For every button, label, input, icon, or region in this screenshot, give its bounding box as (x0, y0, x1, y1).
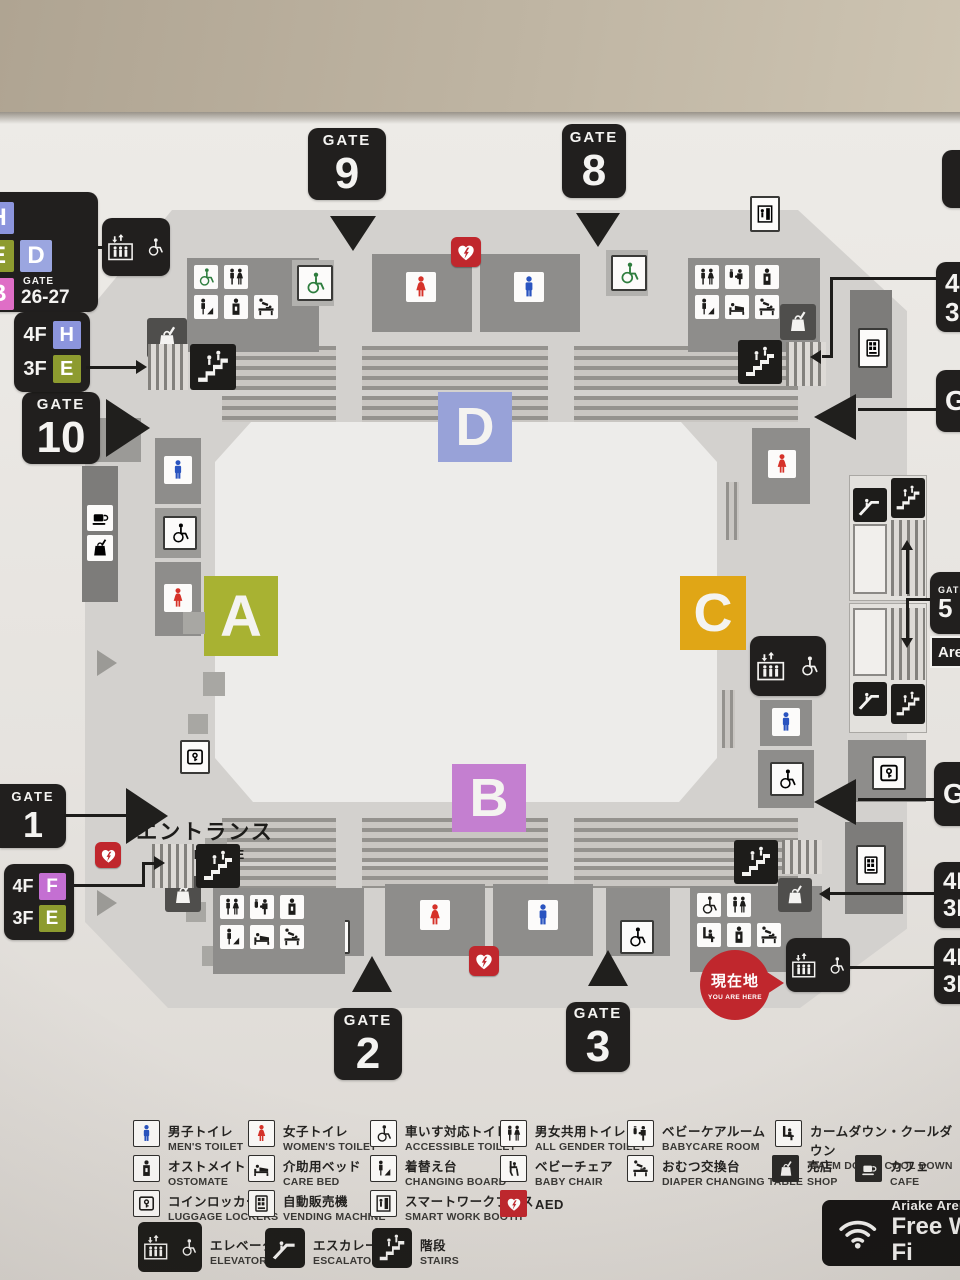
legend-item-shop: 売店SHOP (772, 1155, 838, 1188)
legend-en: AED (535, 1197, 564, 1212)
entrance-arrow (97, 650, 117, 676)
legend-jp: ベビーチェア (535, 1156, 613, 1175)
escalator-icon (853, 682, 887, 716)
section-d-label: D (456, 396, 495, 458)
womens-toilet-icon (406, 272, 436, 302)
free-wifi-banner: Ariake Arena Free Wi-Fi (822, 1200, 960, 1266)
stairs-hatch (148, 344, 188, 390)
floor-3f-label: 3F (23, 359, 46, 379)
elevator-icon (791, 953, 823, 978)
gate-8-number: 8 (582, 149, 606, 193)
you-are-here-en: YOU ARE HERE (708, 994, 762, 1001)
legend-en: CARE BED (283, 1176, 361, 1188)
all-gender-toilet-icon (695, 265, 719, 289)
aed-icon (469, 946, 499, 976)
edge-3f: 3F (943, 973, 960, 997)
arrow-right-head (136, 360, 147, 374)
edge-4f: 4F (945, 270, 960, 296)
babycare-room-icon (725, 265, 749, 289)
gate-1-arrow (126, 788, 168, 844)
escalator-icon (853, 488, 887, 522)
wheelchair-icon (827, 956, 846, 975)
gate-10-number: 10 (37, 416, 86, 460)
you-are-here-marker: 現在地 YOU ARE HERE (700, 950, 770, 1020)
mens-toilet-icon (772, 708, 800, 736)
cafe-icon (87, 505, 113, 531)
stairs-hatch (786, 342, 826, 386)
luggage-locker-icon (133, 1190, 160, 1217)
wheelchair-icon (145, 237, 165, 257)
legend-item-care-bed: 介助用ベッドCARE BED (248, 1155, 361, 1188)
gate-9-arrow (330, 216, 376, 251)
edge-4f: 4F (943, 946, 960, 970)
stand-letter-d: D (20, 240, 52, 272)
arena-floor-map-sign: D A C B (0, 0, 960, 1280)
all-gender-toilet-icon (727, 893, 751, 917)
stairs-hatch (782, 840, 822, 874)
legend-jp: 階段 (420, 1235, 459, 1254)
gate-3-arrow (588, 950, 628, 986)
elevator-icon (138, 1222, 202, 1272)
legend-item-all-gender-toilet: 男女共用トイレALL GENDER TOILET (500, 1120, 647, 1153)
aisle-gap (548, 818, 574, 888)
wheelchair-icon (798, 655, 820, 677)
gate-8-sign: GATE 8 (562, 124, 626, 198)
changing-board-icon (370, 1155, 397, 1182)
legend-jp: 男子トイレ (168, 1121, 243, 1140)
legend-en: BABYCARE ROOM (662, 1141, 766, 1153)
elevator-icon (107, 234, 141, 261)
aisle-gap (336, 346, 362, 422)
arrow-up-line (906, 548, 909, 594)
luggage-locker-icon (180, 740, 210, 774)
gate-9-number: 9 (335, 152, 359, 196)
ostomate-icon (224, 295, 248, 319)
edge-floor-sign-ne: 4F 3F (936, 262, 960, 332)
accessible-toilet-icon (297, 265, 333, 301)
accessible-toilet-icon (194, 265, 218, 289)
vending-machine-icon (248, 1190, 275, 1217)
diaper-changing-icon (280, 925, 304, 949)
legend-en: OSTOMATE (168, 1176, 246, 1188)
gate-1-word: GATE (11, 790, 54, 803)
vending-machine-icon (858, 328, 888, 368)
escalator-well (853, 608, 887, 676)
sign-connector (906, 598, 909, 638)
legend-jp: 着替え台 (405, 1156, 506, 1175)
edge-gate-word: GATE (943, 780, 960, 808)
accessible-toilet-icon (620, 920, 654, 954)
stand-gate-number: 26-27 (21, 288, 70, 307)
mens-toilet-icon (514, 272, 544, 302)
all-gender-toilet-icon (500, 1120, 527, 1147)
stand-letter-h: H (53, 321, 81, 349)
aed-icon (451, 237, 481, 267)
floor-4f-label: 4F (12, 877, 33, 895)
section-a-label: A (220, 583, 262, 650)
section-b-tile: B (452, 764, 526, 832)
gate-1-sign: GATE 1 (0, 784, 66, 848)
gate-9-word: GATE (323, 133, 372, 148)
sign-connector (822, 355, 832, 358)
legend-en: MEN'S TOILET (168, 1141, 243, 1153)
elevator-sign (786, 938, 850, 992)
calm-down-icon (775, 1120, 802, 1147)
aed-icon (500, 1190, 527, 1217)
diaper-changing-icon (757, 923, 781, 947)
accessible-toilet-icon (697, 893, 721, 917)
section-c-label: C (694, 582, 733, 644)
wifi-line1: Ariake Arena (892, 1199, 960, 1213)
wall-background (0, 0, 960, 118)
womens-toilet-icon (164, 584, 192, 612)
care-bed-icon (725, 295, 749, 319)
gate-2-number: 2 (356, 1032, 380, 1076)
legend-jp: 介助用ベッド (283, 1156, 361, 1175)
edge-gate5-number: 5 (938, 595, 952, 621)
accessible-toilet-icon (611, 255, 647, 291)
luggage-locker-icon (872, 756, 906, 790)
arena-floor (215, 422, 717, 802)
wifi-line2: Free Wi-Fi (892, 1214, 960, 1267)
changing-board-icon (695, 295, 719, 319)
stand-letter-e: E (39, 905, 66, 932)
accessible-toilet-icon (370, 1120, 397, 1147)
floor-sign-4f-f-3f-e: 4F F 3F E (4, 864, 74, 940)
all-gender-toilet-icon (220, 895, 244, 919)
womens-toilet-icon (248, 1120, 275, 1147)
escalator-well (853, 524, 887, 594)
legend-jp: ベビーケアルーム (662, 1121, 766, 1140)
stairs-icon (734, 840, 778, 884)
arrow-right-head (154, 856, 165, 870)
baby-chair-icon (500, 1155, 527, 1182)
diaper-changing-icon (627, 1155, 654, 1182)
all-gender-toilet-icon (224, 265, 248, 289)
seating-right-strip (726, 482, 739, 540)
aisle-gap (336, 818, 362, 888)
legend-item-babycare-room: ベビーケアルームBABYCARE ROOM (627, 1120, 766, 1153)
legend-item-aed: AED (500, 1190, 564, 1217)
calm-down-icon (697, 923, 721, 947)
gate-10-sign: GATE 10 (22, 392, 100, 464)
stand-letter-f: F (39, 873, 66, 900)
stand-letter-e: E (53, 355, 81, 383)
floor-sign-4f-h-3f-e: 4F H 3F E (14, 312, 90, 392)
aed-icon (95, 842, 121, 868)
gate-1-line (64, 814, 126, 817)
care-bed-icon (248, 1155, 275, 1182)
stand-letter-h: H (0, 202, 14, 234)
sign-connector (74, 884, 144, 887)
east-gate-arrow (814, 394, 856, 440)
facility-cluster-bottom-left (213, 888, 345, 974)
east-gate-arrow (814, 779, 856, 825)
legend-jp: カームダウン・クールダウン (810, 1121, 960, 1159)
gate-3-sign: GATE 3 (566, 1002, 630, 1072)
ostomate-icon (133, 1155, 160, 1182)
stand-gate-word: GATE (23, 277, 54, 287)
edge-floor-sign-se2: 4F 3F (934, 938, 960, 1004)
section-a-tile: A (204, 576, 278, 656)
legend-item-cafe: カフェCAFE (855, 1155, 929, 1188)
care-bed-icon (250, 925, 274, 949)
stairs-icon (372, 1228, 412, 1268)
legend-jp: カフェ (890, 1156, 929, 1175)
edge-gate-word: GATE (945, 387, 960, 415)
legend-en: BABY CHAIR (535, 1176, 613, 1188)
floor-3f-label: 3F (12, 909, 33, 927)
legend-item-baby-chair: ベビーチェアBABY CHAIR (500, 1155, 613, 1188)
mens-toilet-icon (133, 1120, 160, 1147)
legend-item-changing-board: 着替え台CHANGING BOARD (370, 1155, 506, 1188)
ostomate-icon (727, 923, 751, 947)
sign-connector (96, 246, 104, 249)
stairs-icon (891, 684, 925, 724)
legend-en: STAIRS (420, 1255, 459, 1267)
accessible-toilet-icon (770, 762, 804, 796)
arrow-left-head (819, 887, 830, 901)
shop-icon (87, 535, 113, 561)
stairs-icon (891, 478, 925, 518)
mens-toilet-icon (528, 900, 558, 930)
legend-jp: オストメイト (168, 1156, 246, 1175)
gate-8-word: GATE (570, 130, 619, 145)
escalator-icon (265, 1228, 305, 1268)
cafe-icon (855, 1155, 882, 1182)
legend-en: CAFE (890, 1176, 929, 1188)
legend-item-womens-toilet: 女子トイレWOMEN'S TOILET (248, 1120, 377, 1153)
smart-work-booth-icon (370, 1190, 397, 1217)
gate-2-word: GATE (344, 1013, 393, 1028)
seating-top-upper (222, 346, 798, 390)
gate-10-word: GATE (37, 397, 86, 412)
ostomate-icon (280, 895, 304, 919)
legend-en: WOMEN'S TOILET (283, 1141, 377, 1153)
legend-jp: 売店 (807, 1156, 838, 1175)
edge-gate-5-sign: GATE 5 (930, 572, 960, 634)
elevator-sign (102, 218, 170, 276)
elevator-icon (756, 652, 793, 681)
edge-gate-sign-ne: GATE (936, 370, 960, 432)
you-are-here-jp: 現在地 (711, 970, 759, 991)
legend-item-accessible-toilet: 車いす対応トイレACCESSIBLE TOILET (370, 1120, 516, 1153)
legend-item-stairs: 階段STAIRS (372, 1228, 459, 1268)
edge-sign-cut (942, 150, 960, 208)
diaper-changing-icon (755, 295, 779, 319)
legend-item-mens-toilet: 男子トイレMEN'S TOILET (133, 1120, 243, 1153)
edge-4f: 4F (943, 870, 960, 894)
gate-8-arrow (576, 213, 620, 247)
changing-board-icon (220, 925, 244, 949)
elevator-sign (750, 636, 826, 696)
stand-letter-b: B (0, 278, 14, 310)
path-dot (203, 672, 225, 696)
arrow-down-head (901, 638, 913, 648)
gate-3-number: 3 (586, 1025, 610, 1069)
gate-9-sign: GATE 9 (308, 128, 386, 200)
diaper-changing-icon (254, 295, 278, 319)
mens-toilet-icon (164, 456, 192, 484)
path-dot (183, 612, 205, 634)
stairs-icon (738, 340, 782, 384)
sign-connector (142, 862, 145, 887)
floor-4f-label: 4F (23, 325, 46, 345)
stand-sign-gate-26-27: H E D B GATE 26-27 (0, 192, 98, 312)
path-dot (188, 714, 208, 734)
gate-1-number: 1 (23, 807, 43, 843)
womens-toilet-icon (768, 450, 796, 478)
section-c-tile: C (680, 576, 746, 650)
legend-en: SHOP (807, 1176, 838, 1188)
edge-3f: 3F (943, 897, 960, 921)
edge-gate-5-sub: Arena (930, 636, 960, 668)
you-are-here-pointer (767, 972, 784, 994)
legend-en: CHANGING BOARD (405, 1176, 506, 1188)
legend-item-vending-machine: 自動販売機VENDING MACHINE (248, 1190, 386, 1223)
edge-gate-sign-e: GATE (934, 762, 960, 826)
shop-icon (778, 878, 812, 912)
edge-floor-sign-se1: 4F 3F (934, 862, 960, 928)
gate-3-word: GATE (574, 1006, 623, 1021)
legend-jp: 女子トイレ (283, 1121, 377, 1140)
edge-gate5-sub-label: Arena (938, 644, 960, 661)
gate-2-sign: GATE 2 (334, 1008, 402, 1080)
accessible-toilet-icon (163, 516, 197, 550)
shop-icon (780, 304, 816, 340)
wifi-icon (836, 1216, 880, 1250)
stairs-icon (196, 844, 240, 888)
babycare-room-icon (250, 895, 274, 919)
stairs-icon (190, 344, 236, 390)
sign-connector (830, 277, 833, 358)
smart-work-booth-icon (750, 196, 780, 232)
sign-connector (86, 366, 136, 369)
gate-10-arrow (106, 399, 150, 457)
cafe-shop-block-left (82, 466, 118, 602)
board-shadow (0, 112, 960, 124)
shop-icon (772, 1155, 799, 1182)
arrow-up-head (901, 540, 913, 550)
stand-letter-e: E (0, 240, 14, 272)
sign-connector (144, 862, 154, 865)
ostomate-icon (755, 265, 779, 289)
section-b-label: B (470, 767, 509, 829)
arrow-left-head (810, 350, 821, 364)
changing-board-icon (194, 295, 218, 319)
aisle-gap (548, 346, 574, 422)
legend-item-ostomate: オストメイトOSTOMATE (133, 1155, 246, 1188)
babycare-room-icon (627, 1120, 654, 1147)
womens-toilet-icon (420, 900, 450, 930)
section-d-tile: D (438, 392, 512, 462)
gate-2-arrow (352, 956, 392, 992)
entrance-arrow (97, 890, 117, 916)
vending-machine-icon (856, 845, 886, 885)
edge-3f: 3F (945, 299, 960, 325)
seating-right-strip (722, 690, 735, 748)
